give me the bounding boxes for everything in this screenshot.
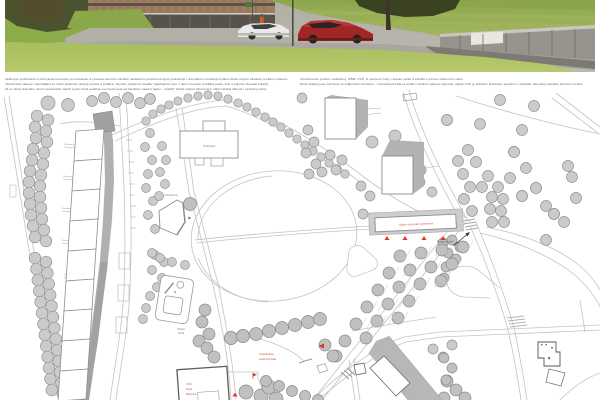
svg-text:Víceúčelová: Víceúčelová [259, 352, 274, 356]
svg-text:Dětské: Dětské [177, 327, 186, 331]
svg-text:Poliklinika: Poliklinika [203, 144, 216, 148]
svg-text:Prostor pro pěší: Prostor pro pěší [437, 241, 454, 244]
svg-text:Modlitebna: Modlitebna [165, 193, 178, 197]
svg-text:Butovice: Butovice [186, 392, 197, 396]
svg-text:sportovní hala: sportovní hala [259, 357, 276, 361]
svg-text:Nové: Nové [186, 387, 193, 391]
svg-text:hřiště: hřiště [178, 331, 185, 335]
